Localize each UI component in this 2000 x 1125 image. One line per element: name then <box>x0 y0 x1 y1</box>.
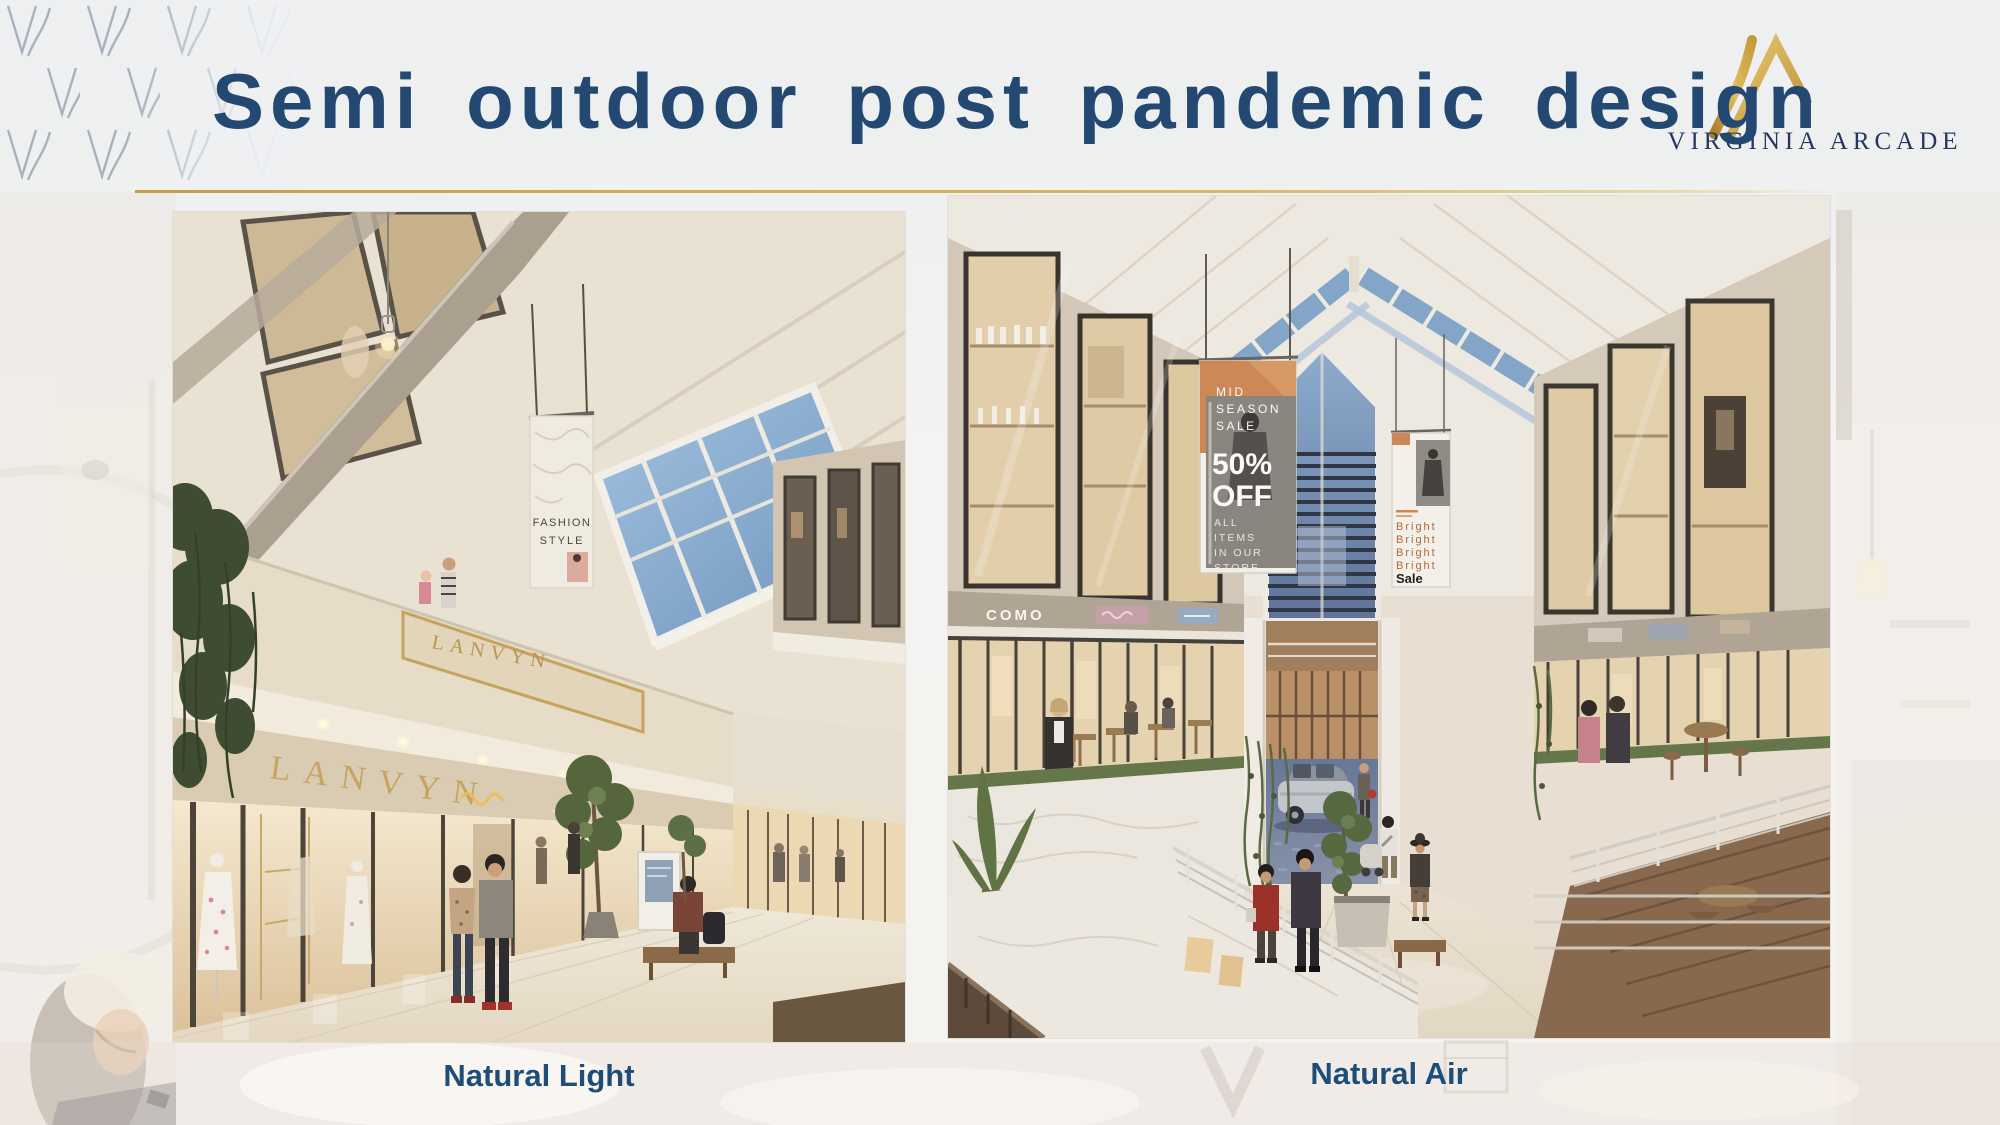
far-storefronts <box>733 787 905 924</box>
page-title: Semi outdoor post pandemic design <box>212 56 1822 147</box>
background-right-strip <box>1836 192 2000 1125</box>
caption-natural-air: Natural Air <box>948 1056 1830 1092</box>
upper-windows-right <box>773 440 905 664</box>
caption-natural-light: Natural Light <box>173 1058 905 1094</box>
banner-line2: STYLE <box>540 535 585 547</box>
banner-line1: FASHION <box>533 517 592 529</box>
gold-divider-line <box>135 190 1835 193</box>
photo-natural-light: LANVYN LANVYN <box>173 212 905 1042</box>
slide: Semi outdoor post pandemic design VIRGIN… <box>0 0 2000 1125</box>
photo-natural-air: COMO <box>948 196 1830 1038</box>
photo-vignette <box>948 196 1830 1038</box>
